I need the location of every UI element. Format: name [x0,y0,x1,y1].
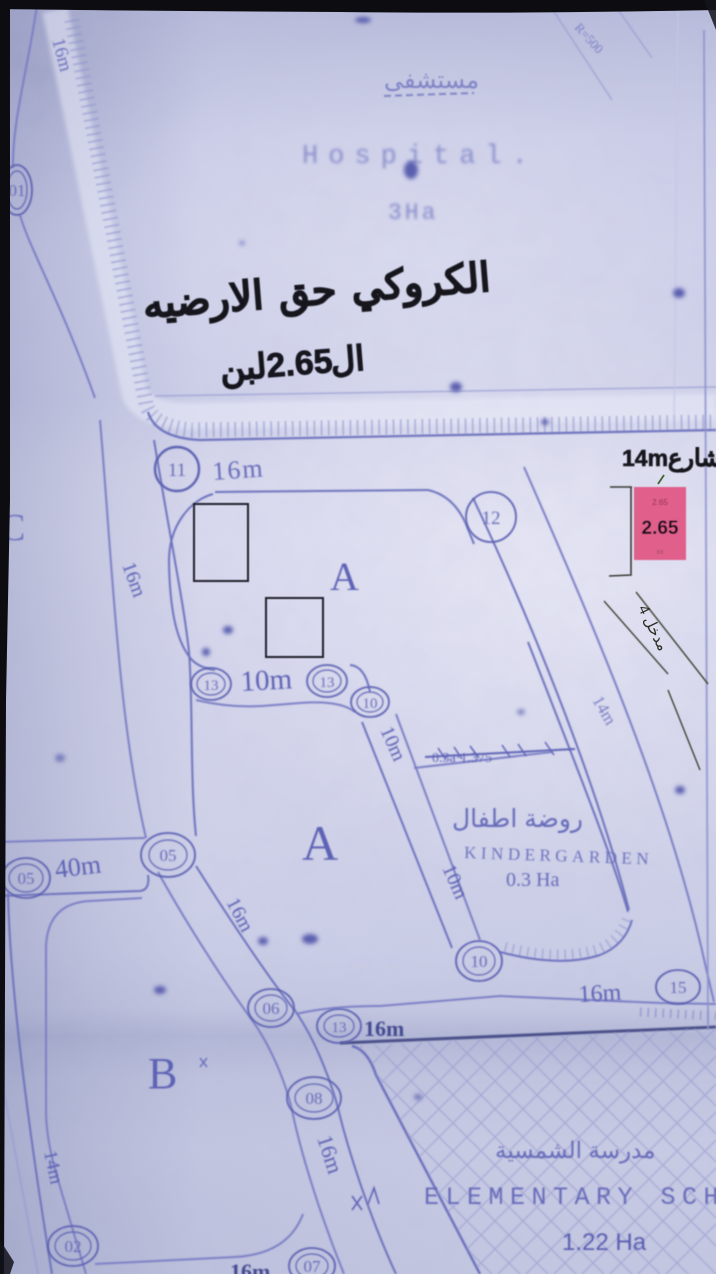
svg-text:B: B [148,1049,177,1098]
svg-text:13: 13 [320,675,335,691]
svg-text:01: 01 [9,181,26,200]
svg-text:0.3 Ha: 0.3 Ha [506,869,559,891]
svg-text:10m: 10m [240,663,294,698]
svg-text:A: A [302,815,338,871]
svg-text:10: 10 [471,952,488,971]
svg-text:11: 11 [168,460,186,481]
svg-text:07: 07 [304,1257,322,1274]
svg-text:08: 08 [306,1089,323,1108]
svg-text:xx: xx [657,549,665,556]
svg-text:14mشارع: 14mشارع [622,445,716,473]
svg-text:روضة اطفال: روضة اطفال [452,805,583,834]
svg-text:02: 02 [65,1237,82,1256]
svg-text:06: 06 [263,999,280,1018]
svg-text:16m: 16m [230,1259,270,1274]
svg-text:10: 10 [363,696,378,712]
svg-text:15: 15 [670,978,687,997]
svg-text:13: 13 [204,678,219,694]
svg-text:16m: 16m [364,1016,404,1041]
svg-text:16m: 16m [211,453,265,486]
svg-text:2.65: 2.65 [652,498,668,507]
svg-text:40m: 40m [53,850,102,884]
svg-text:A: A [330,554,359,599]
svg-text:05: 05 [160,846,177,865]
svg-text:16m: 16m [578,980,622,1008]
svg-text:05: 05 [18,869,35,888]
svg-text:Hospital.: Hospital. [302,142,538,172]
svg-text:13: 13 [332,1020,347,1036]
svg-text:2.65: 2.65 [642,518,679,539]
svg-text:1.22 Ha: 1.22 Ha [562,1229,647,1256]
svg-text:مدرسة الشمسية: مدرسة الشمسية [495,1137,656,1164]
svg-text:ELEMENTARY SCH: ELEMENTARY SCH [424,1183,716,1212]
svg-text:3Ha: 3Ha [388,200,438,226]
svg-text:12: 12 [482,508,501,529]
svg-text:مستشفى: مستشفى [384,67,479,94]
